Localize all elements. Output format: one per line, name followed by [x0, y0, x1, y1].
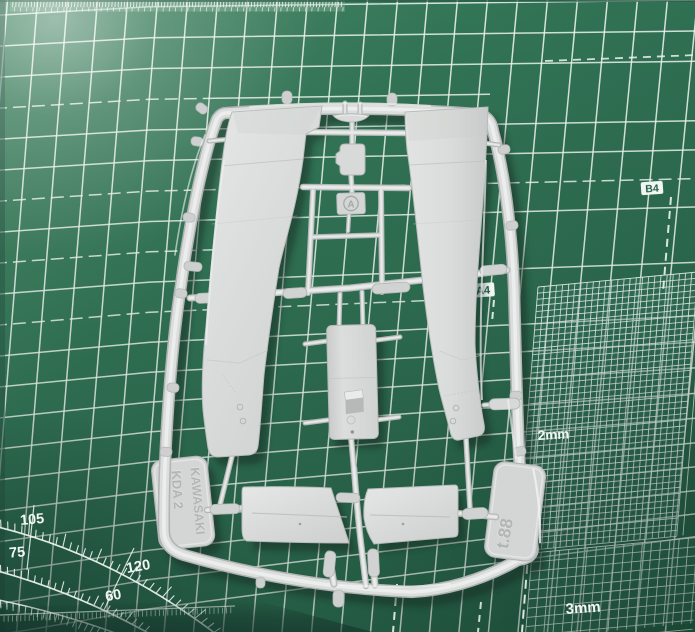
- svg-text:KDA 2: KDA 2: [168, 470, 186, 509]
- svg-text:A: A: [347, 200, 354, 211]
